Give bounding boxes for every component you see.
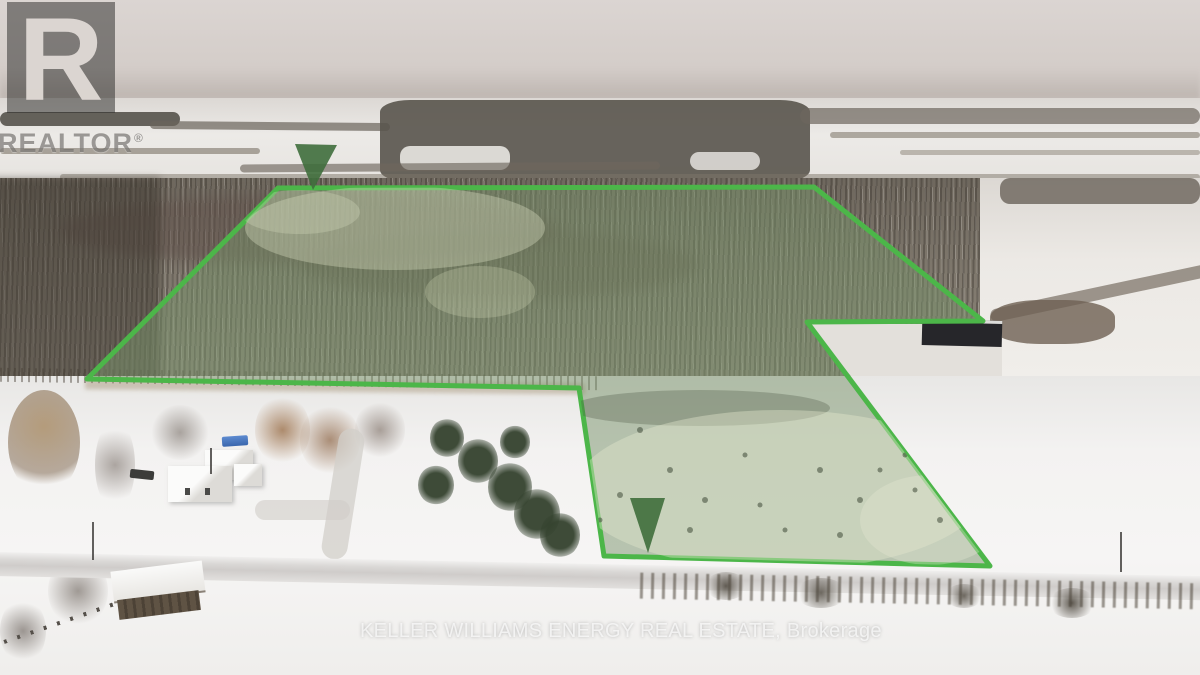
aerial-photo: R REALTOR® KELLER WILLIAMS ENERGY REAL E… [0,0,1200,675]
brokerage-watermark: KELLER WILLIAMS ENERGY REAL ESTATE, Brok… [360,620,882,643]
boundary-marker-icon [295,144,337,190]
realtor-logo-r: R [18,10,103,110]
property-boundary-overlay [0,0,1200,675]
realtor-logo-square: R [7,2,115,113]
realtor-wordmark: REALTOR® [0,128,168,159]
registered-trademark-icon: ® [134,131,144,145]
